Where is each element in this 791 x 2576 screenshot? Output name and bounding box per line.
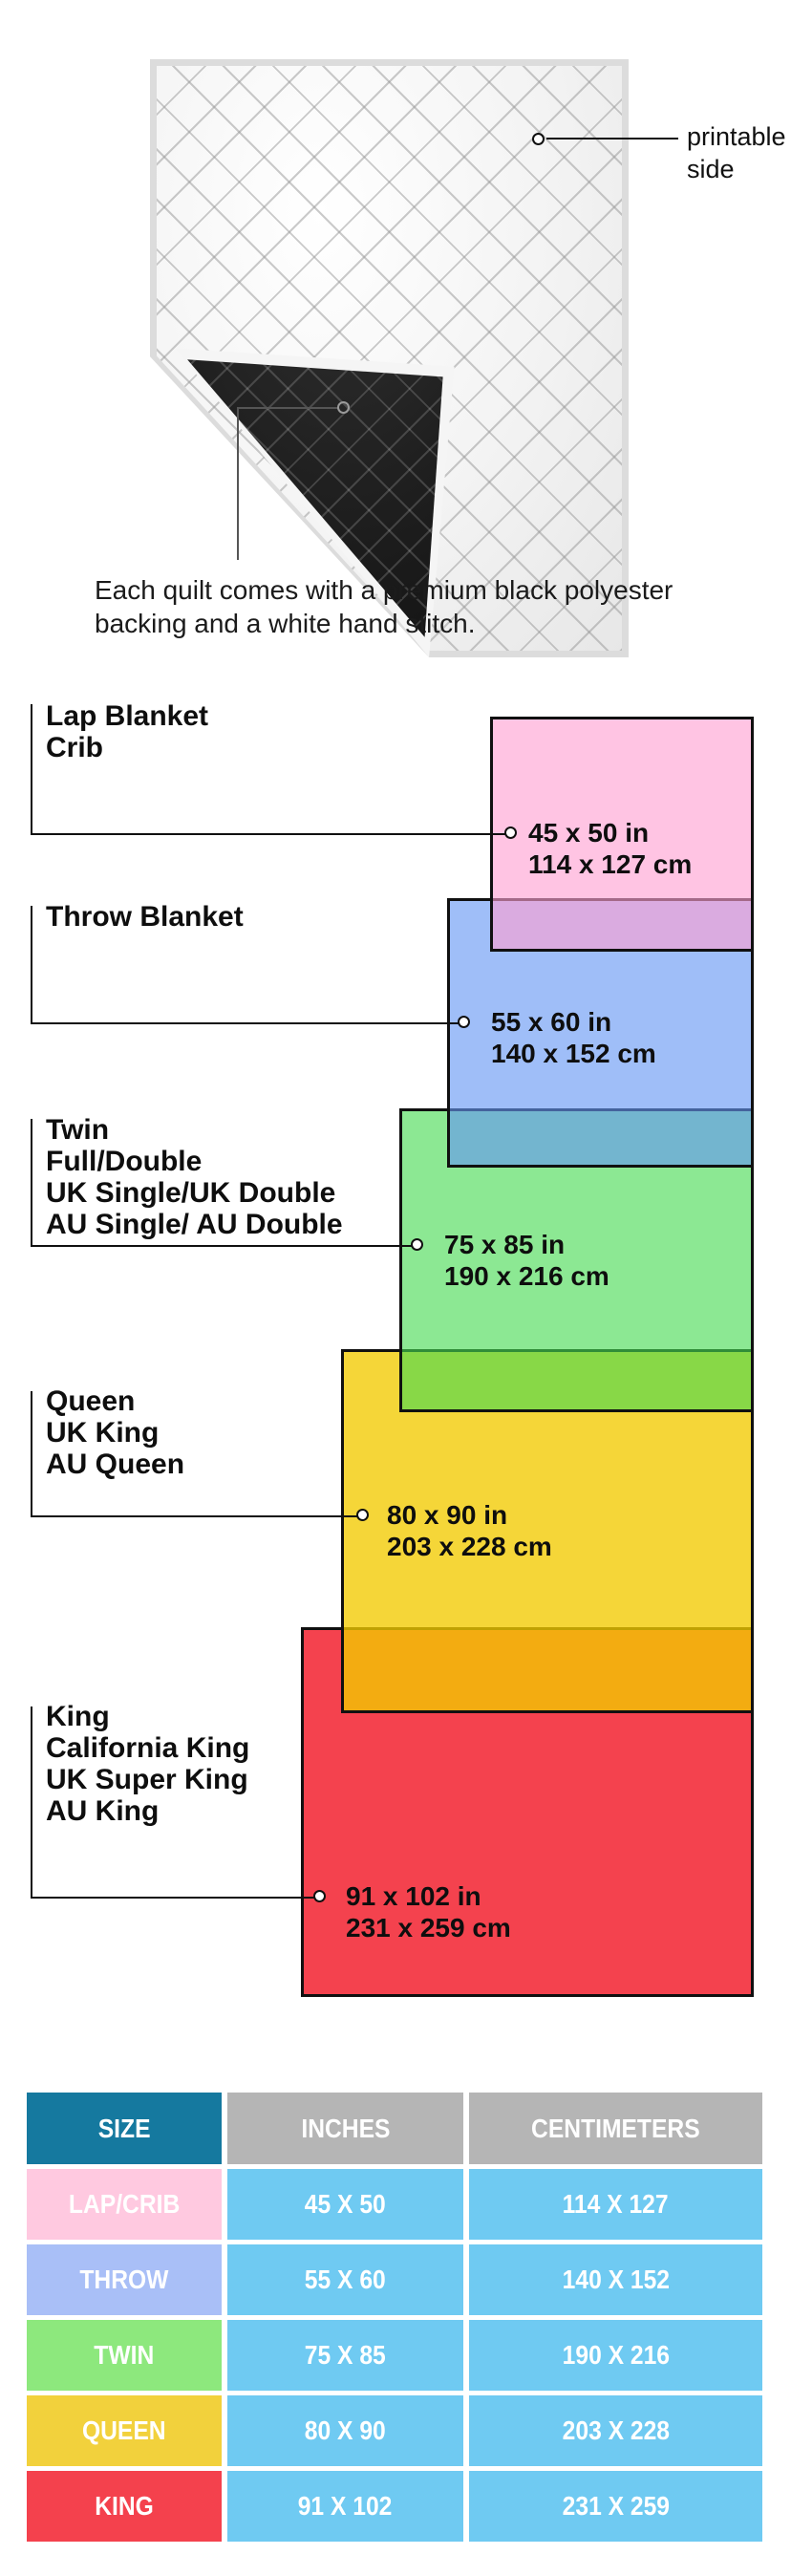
table-header-inches-text: INCHES: [301, 2114, 390, 2144]
printable-side-label-line2: side: [687, 153, 786, 185]
label-queen-line3: AU Queen: [46, 1449, 184, 1480]
label-twin: Twin Full/Double UK Single/UK Double AU …: [46, 1114, 343, 1240]
leader-throw-h: [31, 1022, 459, 1024]
label-twin-line4: AU Single/ AU Double: [46, 1209, 343, 1240]
dims-lap-crib-inches: 45 x 50 in: [528, 817, 692, 848]
table-row-king-inches-text: 91 X 102: [298, 2491, 393, 2522]
table-header-centimeters: CENTIMETERS: [469, 2093, 762, 2164]
leader-twin-h: [31, 1245, 412, 1247]
dims-twin-cm: 190 x 216 cm: [444, 1260, 609, 1292]
dims-lap-crib: 45 x 50 in 114 x 127 cm: [528, 817, 692, 880]
table-row-twin-inches: 75 X 85: [227, 2320, 463, 2391]
label-king-line3: UK Super King: [46, 1764, 249, 1795]
dims-twin: 75 x 85 in 190 x 216 cm: [444, 1229, 609, 1292]
printable-side-label-line1: printable: [687, 120, 786, 153]
table-row-queen-inches: 80 X 90: [227, 2395, 463, 2466]
leader-queen-dot-icon: [356, 1509, 369, 1521]
dims-twin-inches: 75 x 85 in: [444, 1229, 609, 1260]
table-header-size: SIZE: [27, 2093, 222, 2164]
black-backing-leader-line-v: [237, 407, 239, 560]
table-row-king-cm: 231 X 259: [469, 2471, 762, 2542]
table-row-throw-cm: 140 X 152: [469, 2244, 762, 2315]
label-throw-line1: Throw Blanket: [46, 901, 244, 933]
label-queen-line1: Queen: [46, 1385, 184, 1417]
dims-lap-crib-cm: 114 x 127 cm: [528, 848, 692, 880]
dims-queen-inches: 80 x 90 in: [387, 1499, 552, 1531]
leader-queen-h: [31, 1515, 357, 1517]
label-twin-line2: Full/Double: [46, 1146, 343, 1177]
label-lap-crib-line2: Crib: [46, 732, 208, 763]
leader-king-v: [31, 1707, 32, 1898]
size-table: SIZE INCHES CENTIMETERS LAP/CRIB 45 X 50…: [27, 2093, 762, 2542]
label-lap-crib: Lap Blanket Crib: [46, 700, 208, 763]
leader-twin-dot-icon: [411, 1238, 423, 1251]
table-row-queen-inches-text: 80 X 90: [305, 2415, 386, 2446]
dims-king: 91 x 102 in 231 x 259 cm: [346, 1880, 511, 1943]
table-row-lap-cm: 114 X 127: [469, 2169, 762, 2240]
table-row-throw-size-text: THROW: [79, 2265, 168, 2295]
leader-king-h: [31, 1897, 314, 1899]
table-row-throw-inches-text: 55 X 60: [305, 2265, 386, 2295]
label-lap-crib-line1: Lap Blanket: [46, 700, 208, 732]
table-row-throw-cm-text: 140 X 152: [562, 2265, 669, 2295]
dims-throw: 55 x 60 in 140 x 152 cm: [491, 1006, 656, 1069]
label-twin-line3: UK Single/UK Double: [46, 1177, 343, 1209]
table-row-queen-cm: 203 X 228: [469, 2395, 762, 2466]
table-row-lap-size: LAP/CRIB: [27, 2169, 222, 2240]
quilt-photo: [150, 59, 629, 657]
size-chart-infographic: printable side Each quilt comes with a p…: [0, 0, 791, 2576]
table-row-twin-size-text: TWIN: [95, 2340, 155, 2371]
leader-throw-v: [31, 906, 32, 1023]
label-queen-line2: UK King: [46, 1417, 184, 1449]
dims-king-cm: 231 x 259 cm: [346, 1912, 511, 1943]
dims-queen-cm: 203 x 228 cm: [387, 1531, 552, 1562]
leader-twin-v: [31, 1119, 32, 1246]
table-row-king-inches: 91 X 102: [227, 2471, 463, 2542]
table-header-centimeters-text: CENTIMETERS: [531, 2114, 700, 2144]
leader-lap-dot-icon: [504, 826, 517, 839]
dims-queen: 80 x 90 in 203 x 228 cm: [387, 1499, 552, 1562]
label-king: King California King UK Super King AU Ki…: [46, 1701, 249, 1827]
table-row-king-cm-text: 231 X 259: [562, 2491, 669, 2522]
label-king-line4: AU King: [46, 1795, 249, 1827]
leader-queen-v: [31, 1391, 32, 1516]
table-row-lap-inches-text: 45 X 50: [305, 2189, 386, 2220]
dims-throw-inches: 55 x 60 in: [491, 1006, 656, 1038]
printable-side-leader-line: [546, 138, 678, 140]
label-king-line2: California King: [46, 1732, 249, 1764]
black-backing-leader-line-h: [237, 407, 338, 409]
printable-side-label: printable side: [687, 120, 786, 185]
table-header-inches: INCHES: [227, 2093, 463, 2164]
table-row-king-size-text: KING: [95, 2491, 154, 2522]
dims-king-inches: 91 x 102 in: [346, 1880, 511, 1912]
table-row-queen-cm-text: 203 X 228: [562, 2415, 669, 2446]
table-row-twin-inches-text: 75 X 85: [305, 2340, 386, 2371]
table-row-throw-inches: 55 X 60: [227, 2244, 463, 2315]
table-row-queen-size-text: QUEEN: [82, 2415, 166, 2446]
table-row-twin-cm-text: 190 X 216: [562, 2340, 669, 2371]
table-row-throw-size: THROW: [27, 2244, 222, 2315]
table-row-twin-size: TWIN: [27, 2320, 222, 2391]
black-backing-marker-icon: [337, 401, 350, 414]
leader-lap-h: [31, 833, 505, 835]
label-king-line1: King: [46, 1701, 249, 1732]
label-twin-line1: Twin: [46, 1114, 343, 1146]
dims-throw-cm: 140 x 152 cm: [491, 1038, 656, 1069]
leader-throw-dot-icon: [458, 1016, 470, 1028]
label-throw: Throw Blanket: [46, 901, 244, 933]
printable-side-marker-icon: [532, 133, 545, 145]
quilt-caption: Each quilt comes with a premium black po…: [95, 573, 673, 640]
quilt-caption-line2: backing and a white hand stitch.: [95, 607, 673, 640]
table-row-king-size: KING: [27, 2471, 222, 2542]
table-row-lap-cm-text: 114 X 127: [563, 2189, 669, 2220]
table-header-size-text: SIZE: [98, 2114, 151, 2144]
leader-king-dot-icon: [313, 1890, 326, 1902]
quilt-caption-line1: Each quilt comes with a premium black po…: [95, 573, 673, 607]
table-row-queen-size: QUEEN: [27, 2395, 222, 2466]
table-row-lap-inches: 45 X 50: [227, 2169, 463, 2240]
table-row-lap-size-text: LAP/CRIB: [69, 2189, 180, 2220]
label-queen: Queen UK King AU Queen: [46, 1385, 184, 1480]
leader-lap-v: [31, 704, 32, 834]
table-row-twin-cm: 190 X 216: [469, 2320, 762, 2391]
